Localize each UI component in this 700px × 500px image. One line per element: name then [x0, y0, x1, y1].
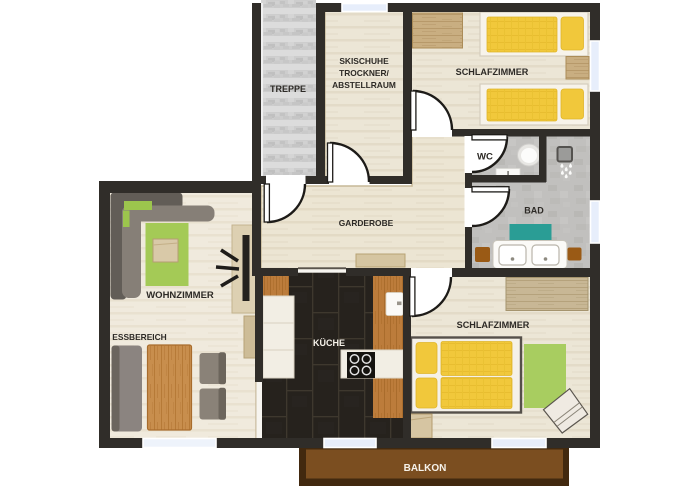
svg-text:SCHLAFZIMMER: SCHLAFZIMMER — [456, 67, 529, 77]
svg-text:SKISCHUHE: SKISCHUHE — [339, 56, 389, 66]
svg-text:KÜCHE: KÜCHE — [313, 338, 345, 348]
svg-text:TROCKNER/: TROCKNER/ — [339, 68, 389, 78]
svg-text:SCHLAFZIMMER: SCHLAFZIMMER — [457, 320, 530, 330]
svg-text:ABSTELLRAUM: ABSTELLRAUM — [332, 80, 396, 90]
svg-text:BAD: BAD — [524, 206, 544, 216]
svg-text:WC: WC — [477, 152, 493, 163]
svg-text:ESSBEREICH: ESSBEREICH — [112, 332, 166, 342]
svg-text:BALKON: BALKON — [404, 463, 447, 474]
svg-text:GARDEROBE: GARDEROBE — [339, 218, 394, 228]
svg-text:TREPPE: TREPPE — [270, 84, 306, 94]
svg-text:WOHNZIMMER: WOHNZIMMER — [146, 290, 214, 301]
